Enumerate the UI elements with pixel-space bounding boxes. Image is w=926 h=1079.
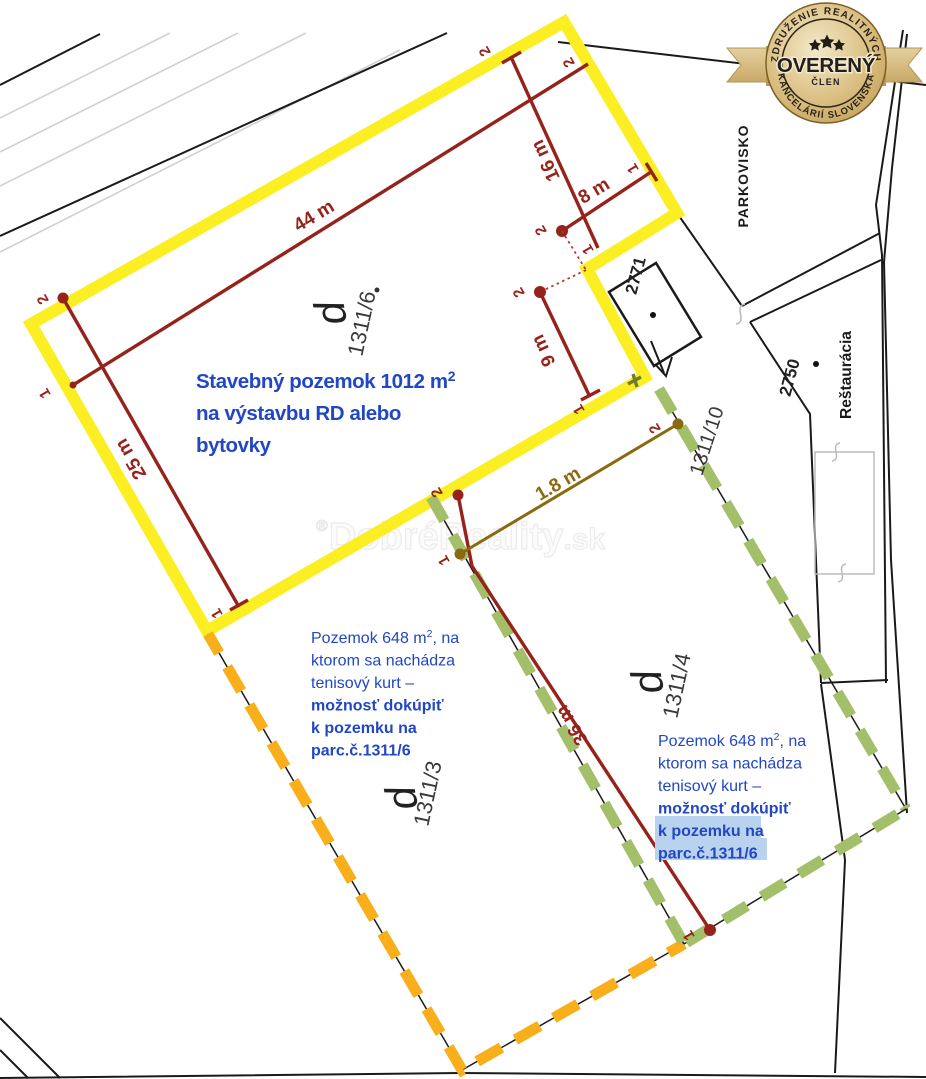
svg-text:Pozemok 648 m2, na: Pozemok 648 m2, na: [311, 628, 459, 647]
svg-text:možnosť dokúpiť: možnosť dokúpiť: [658, 801, 791, 818]
svg-text:Stavebný pozemok 1012 m2: Stavebný pozemok 1012 m2: [196, 368, 456, 393]
svg-text:parc.č.1311/6: parc.č.1311/6: [658, 846, 758, 863]
svg-text:ktorom sa nachádza: ktorom sa nachádza: [658, 756, 802, 773]
svg-text:bytovky: bytovky: [196, 434, 272, 457]
svg-text:možnosť dokúpiť: možnosť dokúpiť: [311, 698, 444, 715]
svg-text:Reštaurácia: Reštaurácia: [838, 331, 855, 419]
svg-text:Pozemok 648 m2, na: Pozemok 648 m2, na: [658, 731, 806, 750]
svg-text:PARKOVISKO: PARKOVISKO: [735, 124, 751, 227]
svg-text:parc.č.1311/6: parc.č.1311/6: [311, 743, 411, 760]
svg-text:®: ®: [316, 518, 328, 535]
svg-text:tenisový kurt –: tenisový kurt –: [658, 778, 761, 795]
svg-text:tenisový kurt –: tenisový kurt –: [311, 675, 414, 692]
svg-text:ktorom sa nachádza: ktorom sa nachádza: [311, 653, 455, 670]
svg-text:ČLEN: ČLEN: [811, 76, 840, 87]
svg-text:na výstavbu RD alebo: na výstavbu RD alebo: [196, 402, 401, 425]
svg-text:k pozemku na: k pozemku na: [658, 823, 764, 840]
svg-text:k pozemku na: k pozemku na: [311, 720, 417, 737]
svg-text:OVERENÝ: OVERENÝ: [777, 53, 876, 77]
